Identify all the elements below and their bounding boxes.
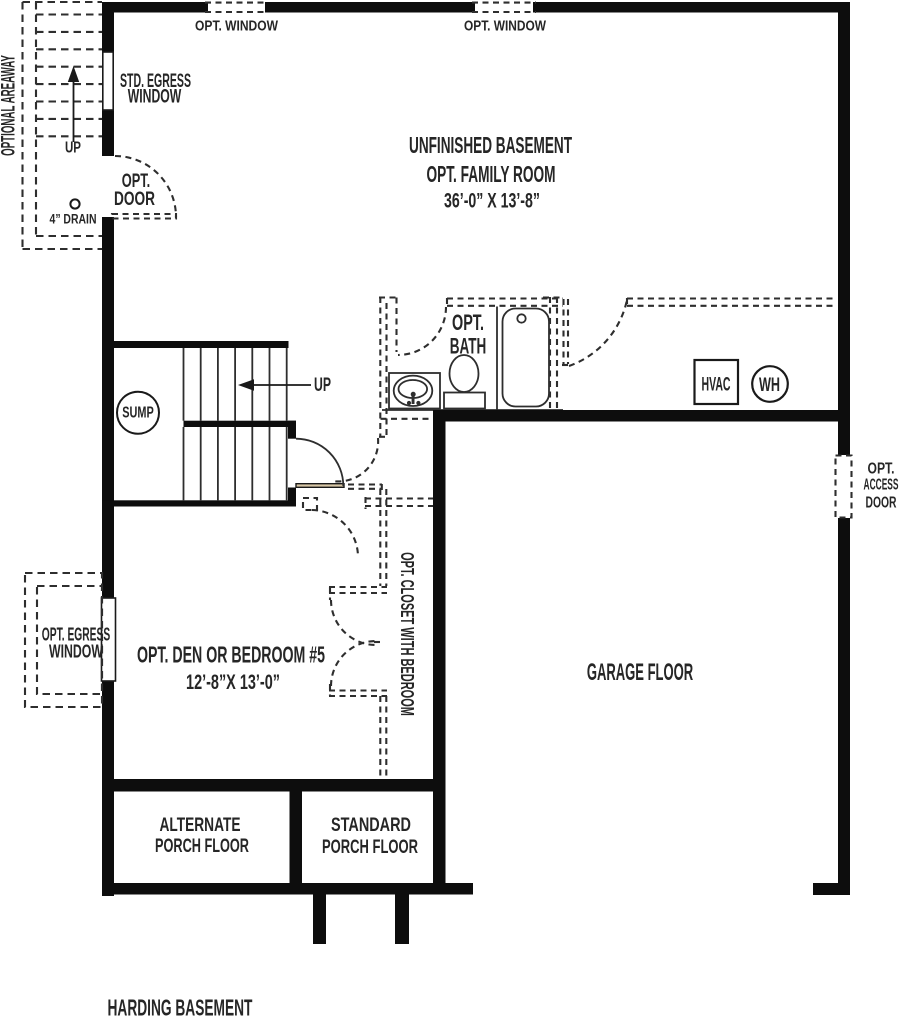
svg-text:OPT. DEN OR BEDROOM #5: OPT. DEN OR BEDROOM #5 <box>137 643 325 668</box>
svg-text:DOOR: DOOR <box>866 493 897 511</box>
svg-text:ACCESS: ACCESS <box>864 476 899 493</box>
svg-text:12’-8”X 13’-0”: 12’-8”X 13’-0” <box>186 670 280 693</box>
svg-text:STANDARD: STANDARD <box>331 814 411 835</box>
svg-text:WH: WH <box>759 375 780 396</box>
svg-text:PORCH FLOOR: PORCH FLOOR <box>322 837 418 858</box>
svg-text:BATH: BATH <box>450 333 487 358</box>
svg-text:UP: UP <box>314 376 331 396</box>
svg-text:OPT. FAMILY ROOM: OPT. FAMILY ROOM <box>427 163 556 189</box>
svg-text:GARAGE FLOOR: GARAGE FLOOR <box>587 660 693 686</box>
svg-text:OPT. WINDOW: OPT. WINDOW <box>195 17 278 34</box>
svg-text:OPTIONAL AREAWAY: OPTIONAL AREAWAY <box>0 55 20 156</box>
svg-text:ALTERNATE: ALTERNATE <box>160 814 241 836</box>
svg-text:WINDOW: WINDOW <box>49 642 103 662</box>
svg-text:OPT.: OPT. <box>452 310 484 335</box>
svg-text:OPT.: OPT. <box>868 459 895 477</box>
svg-text:UP: UP <box>65 138 81 156</box>
svg-text:UNFINISHED BASEMENT: UNFINISHED BASEMENT <box>409 134 572 160</box>
svg-text:36’-0” X 13’-8”: 36’-0” X 13’-8” <box>444 189 540 212</box>
svg-text:HVAC: HVAC <box>702 374 731 395</box>
svg-text:HARDING BASEMENT: HARDING BASEMENT <box>108 996 253 1021</box>
svg-text:4” DRAIN: 4” DRAIN <box>50 211 97 227</box>
svg-text:OPT. CLOSET WITH BEDROOM: OPT. CLOSET WITH BEDROOM <box>396 552 417 716</box>
svg-text:DOOR: DOOR <box>114 188 155 210</box>
svg-text:OPT. WINDOW: OPT. WINDOW <box>464 17 546 34</box>
svg-text:SUMP: SUMP <box>122 403 154 421</box>
svg-text:PORCH FLOOR: PORCH FLOOR <box>155 836 249 857</box>
svg-text:WINDOW: WINDOW <box>128 87 182 107</box>
